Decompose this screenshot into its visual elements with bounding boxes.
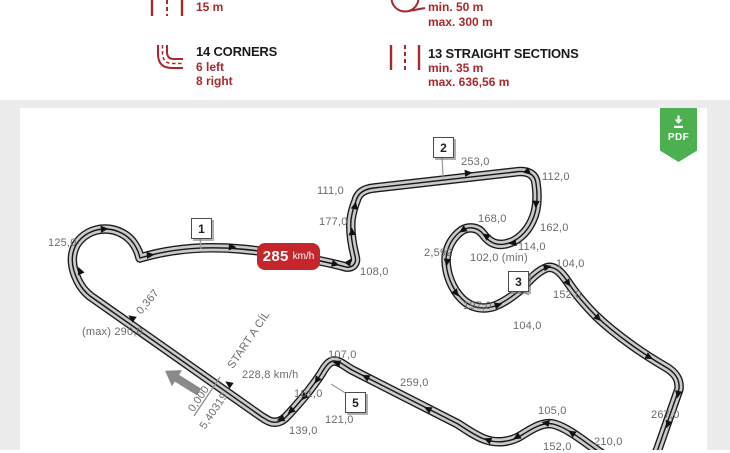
straights-min: min. 35 m	[428, 61, 483, 75]
pdf-download-button[interactable]: PDF	[660, 108, 697, 162]
track-map-section	[0, 100, 730, 450]
pdf-label: PDF	[668, 132, 689, 143]
turn-radius-max: max. 300 m	[428, 15, 493, 29]
straights-title: 13 STRAIGHT SECTIONS	[428, 46, 579, 61]
corners-title: 14 CORNERS	[196, 44, 277, 59]
track-width-icon	[150, 0, 184, 17]
turn-radius-icon	[389, 0, 427, 24]
turn-radius-min: min. 50 m	[428, 0, 483, 14]
track-stats-header: 15 m min. 50 m max. 300 m 14 CORNERS 6 l…	[0, 0, 730, 100]
track-map-card	[20, 108, 707, 450]
download-icon	[671, 115, 686, 129]
corners-left: 6 left	[196, 60, 224, 74]
corner-icon	[156, 44, 184, 71]
straights-max: max. 636,56 m	[428, 75, 509, 89]
straight-sections-icon	[389, 44, 421, 71]
corners-right: 8 right	[196, 74, 233, 88]
track-width-value: 15 m	[196, 0, 223, 14]
